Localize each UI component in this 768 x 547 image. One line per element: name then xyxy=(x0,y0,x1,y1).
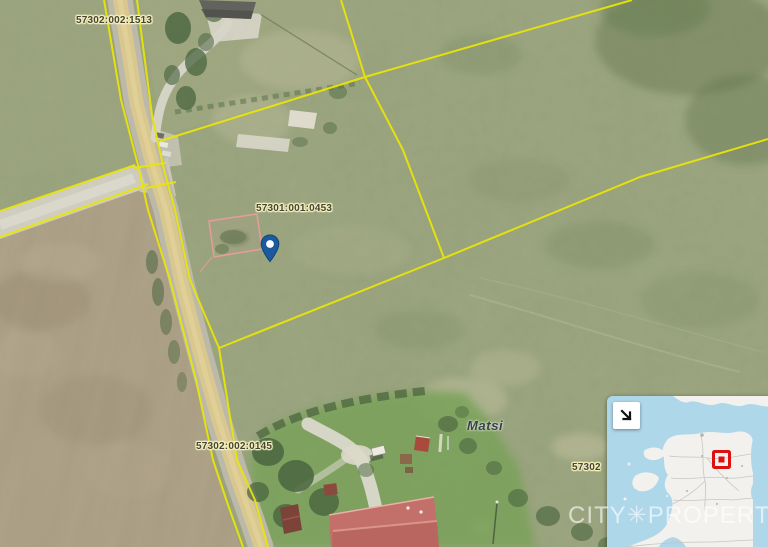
overview-map[interactable] xyxy=(607,396,768,547)
parcel-label-clipped: 57302 xyxy=(572,462,601,473)
overview-collapse-button[interactable] xyxy=(613,402,640,429)
place-name-label: Matsi xyxy=(467,418,503,433)
arrow-down-right-icon xyxy=(619,408,634,423)
parcel-label: 57302:002:0145 xyxy=(196,441,272,452)
parcel-label: 57302:002:1513 xyxy=(76,15,152,26)
parcel-label: 57301:001:0453 xyxy=(256,203,332,214)
map-viewport[interactable]: 57302:002:1513 57301:001:0453 57302:002:… xyxy=(0,0,768,547)
location-pin-icon[interactable] xyxy=(259,234,281,263)
